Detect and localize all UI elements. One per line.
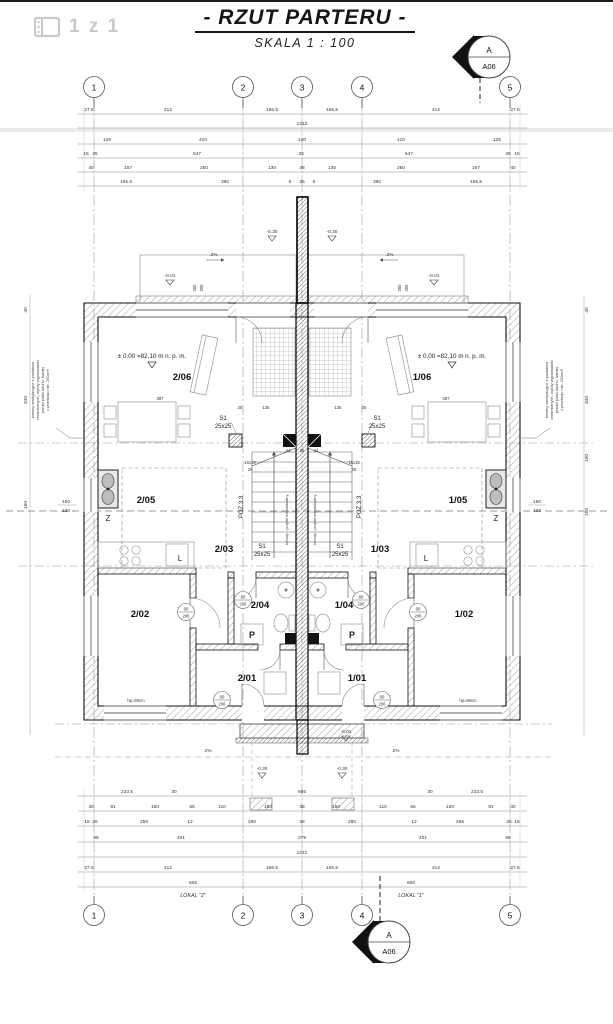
dim-label: 40 (584, 307, 590, 313)
dim-label: 25 (505, 151, 511, 157)
dim-label: 410 (199, 137, 207, 143)
room-label: 2/02 (131, 609, 150, 620)
door-height: 206 (415, 614, 423, 619)
dim-label: 2 (241, 911, 246, 921)
terrace-left (136, 255, 296, 303)
level-label: -0.30 (257, 766, 268, 772)
section-sheet: A06 (382, 947, 395, 956)
terrace-right (308, 255, 468, 303)
dim-label: 401 (419, 835, 427, 841)
dim-label: 30 (427, 789, 433, 795)
dim-label: 255 (456, 819, 464, 825)
drawing-viewer: 1 z 1 - RZUT PARTERU - SKALA 1 : 100 (0, 0, 613, 1024)
window-size-mark: 120 (533, 508, 541, 514)
dim-label: 412 (432, 107, 440, 113)
column-mark: S1 (336, 544, 344, 550)
window-size-mark: 120 (62, 508, 70, 514)
stair-tread-note: 25 (352, 467, 357, 472)
sink-label: Z (494, 514, 499, 523)
dim-label: 5 (508, 83, 513, 93)
window-size-mark: 150 (533, 499, 541, 505)
dim-label: 140 (298, 137, 306, 143)
dim-label: 167 (472, 165, 480, 171)
slope-label: 2% (211, 252, 219, 258)
dim-label: 150 (332, 804, 340, 810)
dim-row: 40811505611015038150110561508140 (88, 804, 516, 810)
dim-row: 1212 (297, 850, 308, 856)
dim-label: 547 (405, 151, 413, 157)
slope-label: 2% (387, 252, 395, 258)
room-label: 1/06 (413, 372, 432, 383)
dim-label: 38 (299, 165, 305, 171)
dim-label: 135 (263, 405, 271, 410)
dim-label: 126 (103, 137, 111, 143)
dim-label: 81 (110, 804, 116, 810)
section-letter: A (486, 46, 492, 55)
dim-label: 3 (300, 911, 305, 921)
room-label: 1/02 (455, 609, 474, 620)
dim-label: 15 (514, 151, 520, 157)
dim-label: 27.5 (84, 865, 94, 871)
room-label: 2/05 (137, 495, 156, 506)
dim-label: 25 (506, 819, 512, 825)
dim-label: 30 (171, 789, 177, 795)
dim-row: 15252551228038280122552515 (84, 819, 520, 825)
scan-artifact-band (0, 128, 613, 132)
dim-label: 15 (84, 819, 90, 825)
level-label: -0.01 (341, 729, 352, 735)
column-size: 25x25 (332, 552, 349, 558)
dim-label: 40 (88, 804, 94, 810)
door-bubble-entry-right: 90 206 (374, 692, 391, 709)
dim-label: 40 (88, 165, 94, 171)
dim-label: 410 (397, 137, 405, 143)
floor-plan-canvas: 90 206 90 206 90 206 90 206 (0, 0, 613, 1024)
dim-label: 3 (300, 83, 305, 93)
level-label: -0.01 (165, 273, 176, 279)
dim-label: 150 (23, 501, 29, 509)
washer-label: P (349, 630, 355, 640)
window-size-mark: 150 (62, 499, 70, 505)
dim-label: 56 (189, 804, 195, 810)
door-bubble-bath-right: 80 206 (353, 592, 370, 609)
section-sheet: A06 (482, 62, 495, 71)
dim-label: 25 (92, 819, 98, 825)
door-width: 90 (184, 607, 189, 612)
dim-label: 1 (92, 83, 97, 93)
dim-label: 150 (584, 508, 590, 516)
dim-label: 166.5 (266, 865, 278, 871)
dim-label: 68 (505, 835, 511, 841)
dim-row: 126410140410126 (103, 137, 501, 143)
room-label: 1/03 (371, 544, 390, 555)
dim-label: 40 (510, 804, 516, 810)
dim-row: 401672501303813025016740 (88, 165, 516, 171)
floor-level-label: ± 0.00 =82,10 m n. p. m. (118, 353, 187, 360)
dim-label: 38 (299, 819, 305, 825)
sink-label: Z (106, 514, 111, 523)
sill-height-label: hp=90cm (459, 698, 477, 703)
sofa-left (190, 335, 218, 395)
room-label: 1/04 (335, 600, 354, 611)
door-bubble-entry-left: 90 206 (214, 692, 231, 709)
dim-label: 40 (510, 165, 516, 171)
dim-label: 38 (299, 804, 305, 810)
dim-label: 255 (140, 819, 148, 825)
dim-label: LOKAL "2" (180, 893, 207, 899)
floor-level-label: ± 0.00 =82,10 m n. p. m. (418, 353, 487, 360)
dim-row: 233.53066630233.5 (121, 789, 483, 795)
sofa-right (386, 335, 414, 395)
dim-label: 25 (238, 405, 243, 410)
dim-label: 350 (397, 284, 402, 292)
dim-label: 412 (164, 107, 172, 113)
column-size: 25x25 (254, 552, 271, 558)
dim-label: 150 (446, 804, 454, 810)
dim-label: 167 (124, 165, 132, 171)
dim-label: 135 (335, 405, 343, 410)
door-height: 206 (358, 602, 366, 607)
dim-label: 155.5 (470, 179, 482, 185)
dim-label: 130 (328, 165, 336, 171)
dim-label: 387 (443, 396, 451, 401)
dim-label: 150 (151, 804, 159, 810)
dim-label: 27.5 (510, 107, 520, 113)
dim-label: 166.5 (326, 107, 338, 113)
dim-label: 150 (264, 804, 272, 810)
room-label: 2/01 (238, 673, 257, 684)
dim-label: 390 (221, 179, 229, 185)
dim-label: 233.5 (471, 789, 483, 795)
door-height: 206 (183, 614, 191, 619)
note-line: o przekroju min. 200cm² (559, 368, 564, 410)
door-bubble-bedroom-right: 90 206 (410, 604, 427, 621)
dim-label: 233.5 (121, 789, 133, 795)
note-line: o przekroju min. 200cm² (45, 368, 50, 410)
door-width: 90 (380, 695, 385, 700)
stair-position-mark: POZ.3.3 (357, 495, 363, 518)
dim-label: 56 (410, 804, 416, 810)
dim-label: 110 (379, 804, 387, 810)
dim-label: 547 (193, 151, 201, 157)
dining-table-left (104, 402, 190, 442)
room-label: 2/06 (173, 372, 192, 383)
dim-label: 280 (348, 819, 356, 825)
fridge-label: L (424, 554, 429, 563)
column-mark: S1 (373, 416, 381, 422)
level-label: -0.01 (429, 273, 440, 279)
dim-label: 280 (248, 819, 256, 825)
dim-label: 27.5 (84, 107, 94, 113)
dim-label: 340 (23, 396, 29, 404)
dim-row: 1525547335472515 (83, 151, 520, 157)
dim-label: 387 (157, 396, 165, 401)
dim-label: 250 (397, 165, 405, 171)
dim-label: 126 (493, 137, 501, 143)
room-label: 1/05 (449, 495, 468, 506)
level-label: -0.30 (267, 229, 278, 235)
dim-label: 305 (404, 284, 409, 292)
sill-height-label: hp=90cm (127, 698, 145, 703)
column-mark: S1 (258, 544, 266, 550)
dim-label: 25 (299, 179, 305, 185)
party-wall (296, 197, 308, 754)
dim-label: 12 (411, 819, 417, 825)
door-width: 80 (359, 595, 364, 600)
dim-label: 44 (314, 448, 319, 453)
door-bubble-bath-left: 80 206 (235, 592, 252, 609)
column-size: 25x25 (369, 424, 386, 430)
dim-label: LOKAL "1" (398, 893, 425, 899)
dim-label: 390 (373, 179, 381, 185)
dim-label: 25 (92, 151, 98, 157)
dim-row: 6840127940168 (93, 835, 511, 841)
washer-label: P (249, 630, 255, 640)
dim-label: 412 (164, 865, 172, 871)
door-height: 206 (379, 702, 387, 707)
dim-label: 5 (508, 911, 513, 921)
level-label: -0.30 (327, 229, 338, 235)
dim-label: 166.5 (266, 107, 278, 113)
door-height: 206 (219, 702, 227, 707)
slope-label: 2% (205, 748, 213, 754)
dim-label: 305 (199, 284, 204, 292)
dim-label: 1 (92, 911, 97, 921)
dim-label: 12 (187, 819, 193, 825)
stair-tread-note: 25 (248, 467, 253, 472)
dim-label: 81 (488, 804, 494, 810)
dim-label: 412 (432, 865, 440, 871)
door-bubble-bedroom-left: 90 206 (178, 604, 195, 621)
grid-bubble-labels-top: 12345 (92, 83, 513, 93)
column-size: 25x25 (215, 424, 232, 430)
dim-label: 4 (360, 911, 365, 921)
dim-label: 5 (289, 179, 292, 185)
dim-label: 5 (313, 179, 316, 185)
dim-row: 155.53905255390155.5 (120, 179, 482, 185)
room-label: 1/01 (348, 673, 367, 684)
door-width: 90 (220, 695, 225, 700)
door-height: 206 (240, 602, 248, 607)
dim-label: 110 (218, 804, 226, 810)
room-label: 2/04 (251, 600, 270, 611)
dim-label: 68 (93, 835, 99, 841)
section-letter: A (386, 931, 392, 940)
dim-label: 4 (360, 83, 365, 93)
level-label: -0.30 (337, 766, 348, 772)
dim-label: 15 (514, 819, 520, 825)
dim-label: 340 (584, 396, 590, 404)
door-width: 80 (241, 595, 246, 600)
dim-label: 2 (241, 83, 246, 93)
dim-label: 25 (362, 405, 367, 410)
dim-label: 666 (298, 789, 306, 795)
fridge-label: L (178, 554, 183, 563)
dim-label: 25 (300, 448, 305, 453)
grid-bubble-labels-bottom: 12345 (92, 911, 513, 921)
dim-label: 250 (200, 165, 208, 171)
dim-label: 33 (298, 151, 304, 157)
dim-label: 155.5 (120, 179, 132, 185)
stairs-note: schody - projekt indywidualny (284, 495, 289, 546)
extension-lines-top (84, 104, 520, 190)
dim-label: 130 (268, 165, 276, 171)
lokal-labels: LOKAL "2"LOKAL "1" (180, 893, 425, 899)
dim-label: 27.5 (510, 865, 520, 871)
dim-row: 1212 (297, 121, 308, 127)
column-mark: S1 (219, 416, 227, 422)
dining-table-right (412, 402, 500, 442)
dim-label: 350 (192, 284, 197, 292)
dim-label: 1212 (297, 850, 308, 856)
dim-label: 279 (298, 835, 306, 841)
stair-position-mark: POZ.3.3 (239, 495, 245, 518)
dim-label: 100 (584, 454, 590, 462)
dim-label: 15 (83, 151, 89, 157)
stair-riser-note: 16x18 (244, 460, 256, 465)
dim-label: 44 (286, 448, 291, 453)
dim-label: 401 (177, 835, 185, 841)
dim-label: 40 (23, 307, 29, 313)
stair-riser-note: 16x18 (348, 460, 360, 465)
slope-label: 2% (393, 748, 401, 754)
dim-label: 606 (407, 880, 415, 886)
stairs-note: schody - projekt indywidualny (312, 495, 317, 546)
dim-label: 166.5 (326, 865, 338, 871)
door-width: 90 (416, 607, 421, 612)
dim-label: 606 (189, 880, 197, 886)
dim-label: 1212 (297, 121, 308, 127)
room-label: 2/03 (215, 544, 234, 555)
